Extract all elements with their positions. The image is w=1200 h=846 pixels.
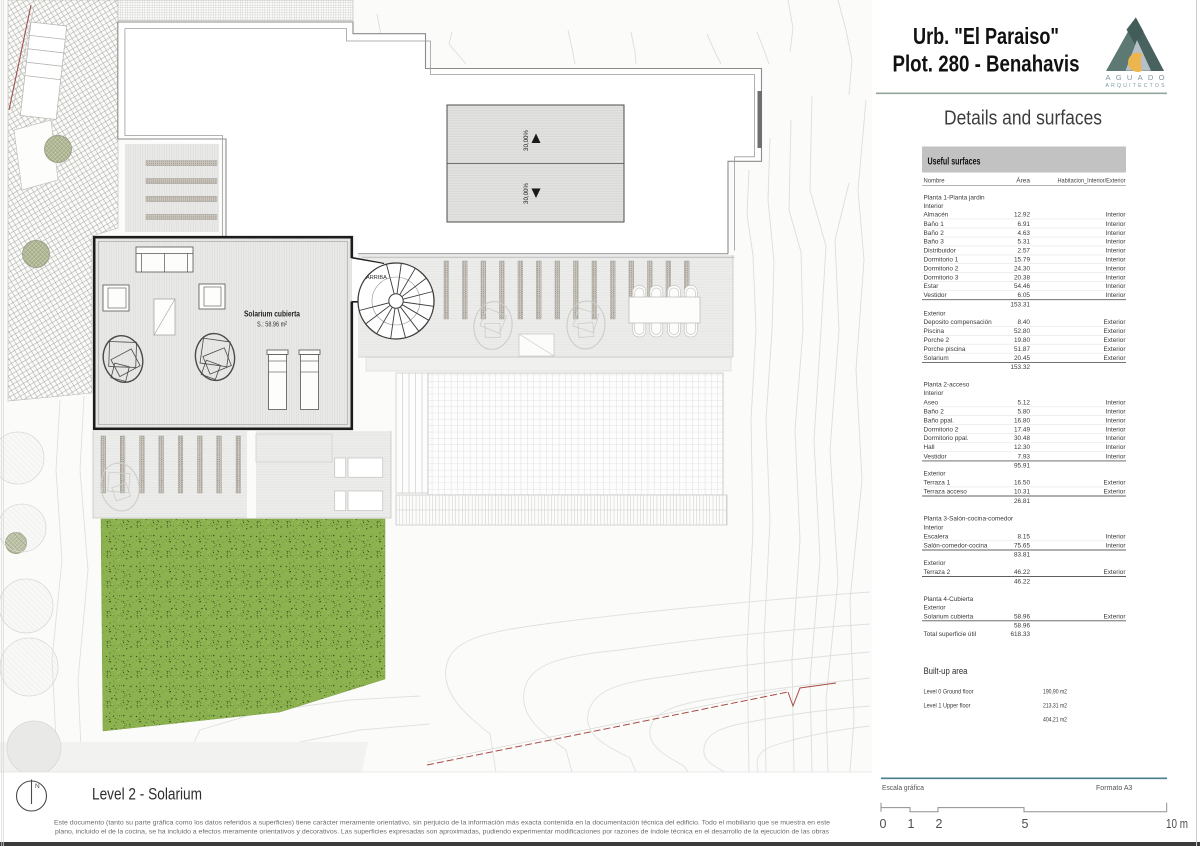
svg-text:Level 1 Upper floor: Level 1 Upper floor xyxy=(924,703,971,710)
svg-text:8.40: 8.40 xyxy=(1018,319,1031,326)
svg-text:190,90 m2: 190,90 m2 xyxy=(1043,689,1067,696)
svg-text:Solarium cubierta: Solarium cubierta xyxy=(244,309,300,319)
svg-text:Exterior: Exterior xyxy=(1103,613,1126,620)
svg-text:Interior: Interior xyxy=(1106,283,1127,290)
svg-text:Deposito compensación: Deposito compensación xyxy=(924,319,993,326)
svg-text:Este documento (tanto su parte: Este documento (tanto su parte gráfica c… xyxy=(54,819,830,826)
svg-text:Total superficie útil: Total superficie útil xyxy=(924,631,977,638)
svg-text:Built-up area: Built-up area xyxy=(924,666,969,677)
svg-text:Formato A3: Formato A3 xyxy=(1096,783,1133,792)
svg-text:2: 2 xyxy=(936,817,943,831)
svg-text:Exterior: Exterior xyxy=(924,604,947,611)
svg-text:plano, incluido el de la cocin: plano, incluido el de la cocina, se ha i… xyxy=(55,829,829,836)
svg-text:Porche piscina: Porche piscina xyxy=(924,346,966,353)
svg-text:Planta 4-Cubierta: Planta 4-Cubierta xyxy=(924,596,974,603)
svg-text:Vestidor: Vestidor xyxy=(924,292,948,299)
svg-text:Exterior: Exterior xyxy=(1103,319,1126,326)
svg-text:46.22: 46.22 xyxy=(1014,569,1030,576)
svg-text:Planta 1-Planta jardin: Planta 1-Planta jardin xyxy=(924,194,986,201)
svg-text:Baño 1: Baño 1 xyxy=(924,221,945,228)
svg-text:Estar: Estar xyxy=(924,283,940,290)
svg-text:Exterior: Exterior xyxy=(1103,480,1126,487)
svg-text:Details and surfaces: Details and surfaces xyxy=(944,107,1102,130)
svg-text:153.31: 153.31 xyxy=(1010,301,1030,308)
svg-text:Vestidor: Vestidor xyxy=(924,453,948,460)
svg-text:Interior: Interior xyxy=(1106,444,1127,451)
svg-text:5: 5 xyxy=(1022,817,1029,831)
svg-text:Interior: Interior xyxy=(924,390,945,397)
svg-text:618.33: 618.33 xyxy=(1010,631,1030,638)
svg-text:Interior: Interior xyxy=(1106,221,1127,228)
svg-text:12.30: 12.30 xyxy=(1014,444,1030,451)
svg-text:Exterior: Exterior xyxy=(1103,346,1126,353)
svg-text:10.31: 10.31 xyxy=(1014,489,1030,496)
svg-text:12.92: 12.92 xyxy=(1014,212,1030,219)
svg-text:Dormitorio 2: Dormitorio 2 xyxy=(924,426,959,433)
svg-text:Plot. 280 - Benahavis: Plot. 280 - Benahavis xyxy=(893,51,1080,77)
svg-text:213,31 m2: 213,31 m2 xyxy=(1043,703,1067,710)
svg-text:Interior: Interior xyxy=(1106,274,1127,281)
svg-text:Interior: Interior xyxy=(1106,248,1127,255)
svg-text:Interior: Interior xyxy=(1106,230,1127,237)
svg-text:26.81: 26.81 xyxy=(1014,498,1030,505)
svg-text:19.80: 19.80 xyxy=(1014,337,1030,344)
svg-text:2.57: 2.57 xyxy=(1018,248,1031,255)
svg-text:5.80: 5.80 xyxy=(1018,408,1031,415)
svg-text:Aseo: Aseo xyxy=(924,400,939,407)
svg-text:Interior: Interior xyxy=(1106,256,1127,263)
svg-text:Almacén: Almacén xyxy=(924,212,949,219)
svg-text:Terraza acceso: Terraza acceso xyxy=(924,489,968,496)
svg-text:30,00%: 30,00% xyxy=(523,183,530,204)
svg-text:30,00%: 30,00% xyxy=(523,130,530,151)
svg-text:Dormitorio 3: Dormitorio 3 xyxy=(924,274,959,281)
svg-text:Baño 3: Baño 3 xyxy=(924,239,945,246)
svg-text:Interior: Interior xyxy=(1106,239,1127,246)
svg-text:Interior: Interior xyxy=(1106,400,1127,407)
svg-text:6.05: 6.05 xyxy=(1018,292,1031,299)
svg-text:17.49: 17.49 xyxy=(1014,426,1030,433)
svg-text:7.93: 7.93 xyxy=(1018,453,1031,460)
svg-text:Exterior: Exterior xyxy=(924,471,947,478)
svg-text:Urb. "El Paraiso": Urb. "El Paraiso" xyxy=(913,23,1059,49)
svg-text:Interior: Interior xyxy=(1106,534,1127,541)
svg-text:Terraza 2: Terraza 2 xyxy=(924,569,951,576)
svg-text:54.46: 54.46 xyxy=(1014,283,1030,290)
svg-text:Exterior: Exterior xyxy=(924,310,947,317)
svg-text:6.91: 6.91 xyxy=(1018,221,1031,228)
svg-text:Distribuidor: Distribuidor xyxy=(924,248,957,255)
svg-text:Dormitorio 2: Dormitorio 2 xyxy=(924,265,959,272)
svg-text:1: 1 xyxy=(908,817,915,831)
svg-text:Interior: Interior xyxy=(1106,212,1127,219)
svg-text:Exterior: Exterior xyxy=(1103,337,1126,344)
svg-text:83.81: 83.81 xyxy=(1014,551,1030,558)
svg-text:Interior: Interior xyxy=(1106,265,1127,272)
svg-text:Escalera: Escalera xyxy=(924,534,949,541)
svg-text:Exterior: Exterior xyxy=(1103,328,1126,335)
svg-text:24.30: 24.30 xyxy=(1014,265,1030,272)
svg-text:Interior: Interior xyxy=(1106,417,1127,424)
svg-text:Solarium cubierta: Solarium cubierta xyxy=(924,613,974,620)
svg-text:153.32: 153.32 xyxy=(1010,364,1030,371)
svg-text:Exterior: Exterior xyxy=(924,560,947,567)
svg-text:Baño 2: Baño 2 xyxy=(924,408,945,415)
svg-text:Useful surfaces: Useful surfaces xyxy=(928,157,981,168)
svg-text:Planta 2-acceso: Planta 2-acceso xyxy=(924,381,970,388)
svg-text:Salón-comedor-cocina: Salón-comedor-cocina xyxy=(924,543,988,550)
svg-text:Nombre: Nombre xyxy=(924,178,945,185)
svg-text:8.15: 8.15 xyxy=(1018,534,1031,541)
svg-text:Habitacion_Interior/Exterior: Habitacion_Interior/Exterior xyxy=(1058,178,1127,185)
svg-text:4.63: 4.63 xyxy=(1018,230,1031,237)
svg-text:58.96: 58.96 xyxy=(1014,622,1030,629)
svg-text:S.: 58.96 m²: S.: 58.96 m² xyxy=(257,320,287,329)
svg-text:5.31: 5.31 xyxy=(1018,239,1031,246)
svg-text:Terraza 1: Terraza 1 xyxy=(924,480,951,487)
svg-text:15.79: 15.79 xyxy=(1014,256,1030,263)
svg-text:Interior: Interior xyxy=(1106,543,1127,550)
svg-text:Interior: Interior xyxy=(1106,408,1127,415)
svg-text:ARQUITECTOS: ARQUITECTOS xyxy=(1106,83,1166,89)
svg-text:Planta 3-Salón-cocina-comedor: Planta 3-Salón-cocina-comedor xyxy=(924,515,1014,522)
svg-text:52.80: 52.80 xyxy=(1014,328,1030,335)
svg-text:Exterior: Exterior xyxy=(1103,569,1126,576)
svg-text:Escala gráfica: Escala gráfica xyxy=(882,783,925,792)
svg-text:Dormitorio ppal.: Dormitorio ppal. xyxy=(924,435,969,442)
svg-text:Baño ppal.: Baño ppal. xyxy=(924,417,955,424)
svg-text:Interior: Interior xyxy=(1106,453,1127,460)
svg-text:Interior: Interior xyxy=(1106,426,1127,433)
svg-text:Level 0 Ground floor: Level 0 Ground floor xyxy=(924,689,974,696)
svg-text:Interior: Interior xyxy=(1106,292,1127,299)
svg-text:ARRIBA: ARRIBA xyxy=(366,275,387,281)
svg-text:Área: Área xyxy=(1016,176,1030,185)
svg-text:20.45: 20.45 xyxy=(1014,355,1030,362)
svg-text:Piscina: Piscina xyxy=(924,328,945,335)
svg-text:20.38: 20.38 xyxy=(1014,274,1030,281)
svg-text:75.65: 75.65 xyxy=(1014,543,1030,550)
svg-text:0: 0 xyxy=(880,817,887,831)
svg-text:51.87: 51.87 xyxy=(1014,346,1030,353)
svg-text:95.91: 95.91 xyxy=(1014,462,1030,469)
svg-text:Interior: Interior xyxy=(924,524,945,531)
svg-text:Baño 2: Baño 2 xyxy=(924,230,945,237)
svg-text:Hall: Hall xyxy=(924,444,935,451)
svg-text:Interior: Interior xyxy=(924,203,945,210)
svg-text:58.96: 58.96 xyxy=(1014,613,1030,620)
svg-text:46.22: 46.22 xyxy=(1014,578,1030,585)
svg-text:16.50: 16.50 xyxy=(1014,480,1030,487)
svg-text:5.12: 5.12 xyxy=(1018,400,1031,407)
svg-text:Solarium: Solarium xyxy=(924,355,949,362)
svg-text:10 m: 10 m xyxy=(1166,817,1188,831)
svg-text:16.80: 16.80 xyxy=(1014,417,1030,424)
svg-text:Interior: Interior xyxy=(1106,435,1127,442)
svg-text:Dormitorio 1: Dormitorio 1 xyxy=(924,256,959,263)
svg-text:Exterior: Exterior xyxy=(1103,355,1126,362)
svg-text:404,21 m2: 404,21 m2 xyxy=(1043,717,1067,724)
svg-text:Porche 2: Porche 2 xyxy=(924,337,950,344)
svg-text:Exterior: Exterior xyxy=(1103,489,1126,496)
svg-text:N: N xyxy=(35,783,40,790)
svg-text:Level 2 - Solarium: Level 2 - Solarium xyxy=(92,785,202,804)
svg-text:30.48: 30.48 xyxy=(1014,435,1030,442)
